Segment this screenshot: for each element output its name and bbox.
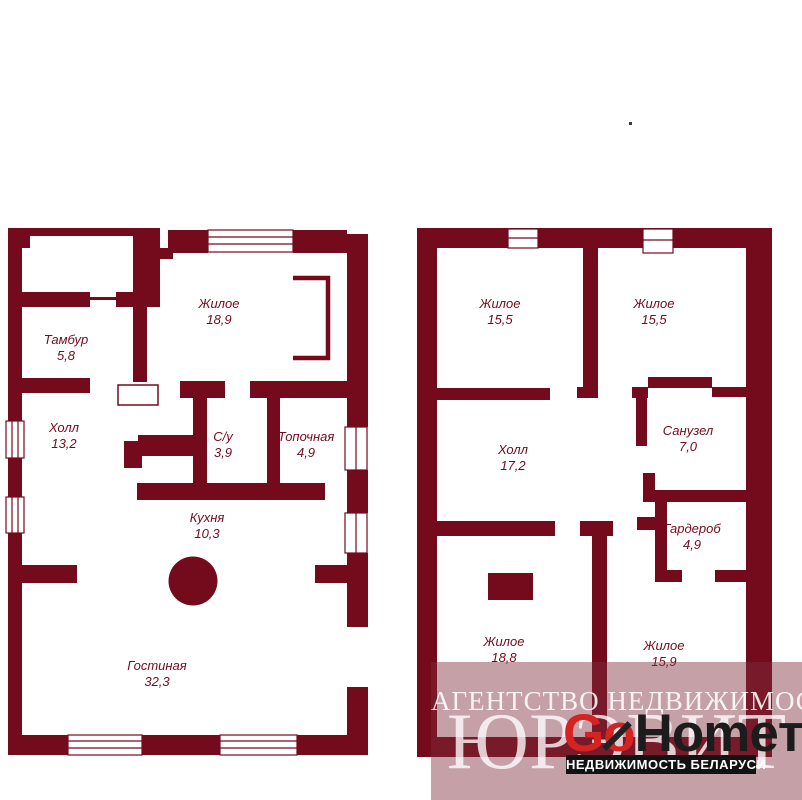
room-label-gostinaya: Гостиная32,3 <box>127 658 186 691</box>
gohome-tagline-banner: НЕДВИЖИМОСТЬ БЕЛАРУСИ <box>566 755 756 774</box>
gohome-logo: GoHomeт <box>563 707 802 760</box>
floorplan-page: Тамбур5,8 Жилое18,9 Холл13,2 С/у3,9 Топо… <box>0 0 802 800</box>
room-label-garderob: Гардероб4,9 <box>663 521 720 554</box>
room-label-zhiloe-2b: Жилое15,5 <box>634 296 675 329</box>
room-label-tambur: Тамбур5,8 <box>44 332 89 365</box>
room-label-su: С/у3,9 <box>213 429 233 462</box>
room-label-sanuzel: Санузел7,0 <box>663 423 713 456</box>
room-label-topochnaya: Топочная4,9 <box>278 429 335 462</box>
room-label-holl-1: Холл13,2 <box>49 420 79 453</box>
room-label-zhiloe-1: Жилое18,9 <box>199 296 240 329</box>
scan-artifact-dot <box>629 122 632 125</box>
floor1-stove <box>169 557 218 606</box>
room-label-holl-2: Холл17,2 <box>498 442 528 475</box>
room-label-kuhnya: Кухня10,3 <box>190 510 225 543</box>
floor1-wardrobe-symbol <box>293 278 328 358</box>
floor1-walls <box>8 228 368 755</box>
floor1-door <box>118 385 158 405</box>
gohome-logo-suffix: т <box>778 704 802 763</box>
room-label-zhiloe-2a: Жилое15,5 <box>480 296 521 329</box>
